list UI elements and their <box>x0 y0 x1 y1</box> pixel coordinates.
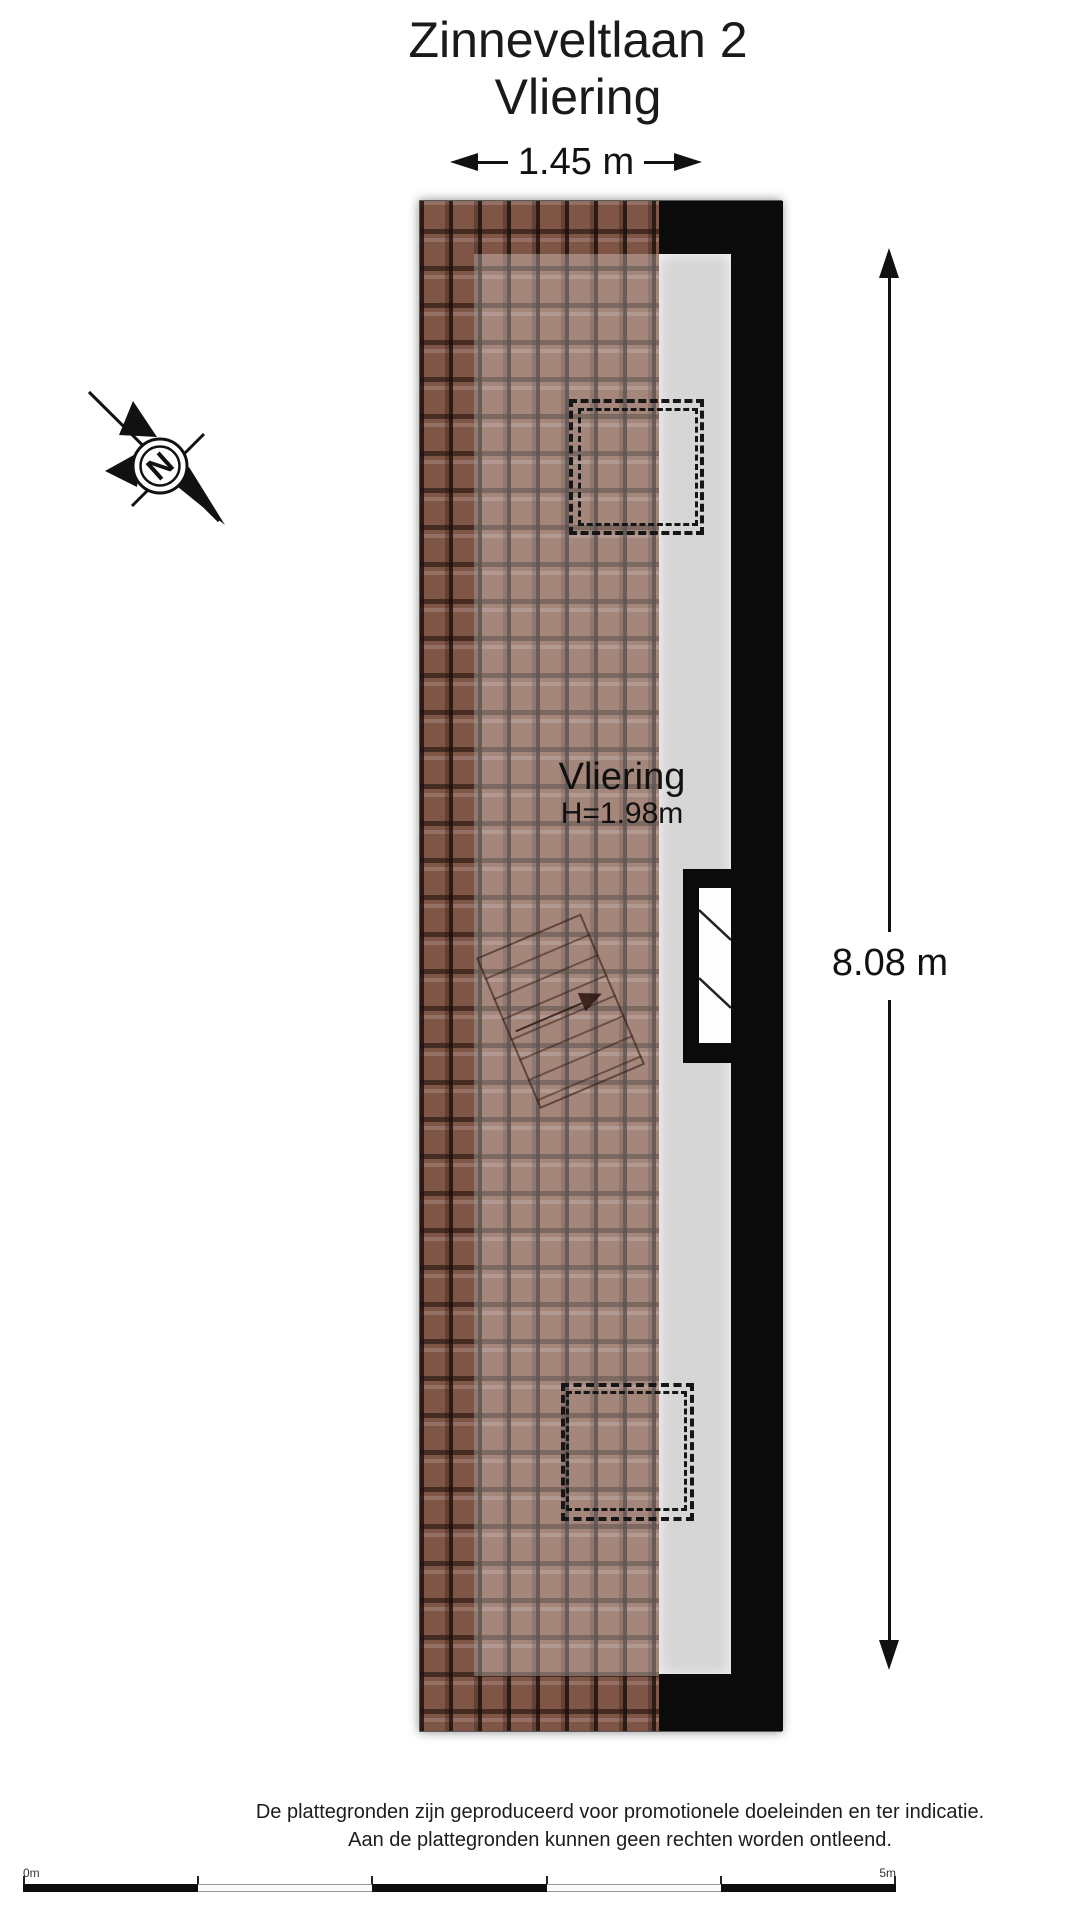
arrow-up-icon <box>879 248 899 278</box>
top-wall-block <box>659 201 783 254</box>
height-dimension-line-top <box>888 276 891 932</box>
window-pane <box>699 888 731 1043</box>
width-dimension-label: 1.45 m <box>508 141 644 184</box>
dormer-outline-bottom-inner <box>566 1391 687 1511</box>
side-window <box>683 869 783 1063</box>
disclaimer: De plattegronden zijn geproduceerd voor … <box>130 1798 1080 1854</box>
disclaimer-line-1: De plattegronden zijn geproduceerd voor … <box>130 1798 1080 1826</box>
stair-direction-arrow-icon <box>578 984 606 1011</box>
width-dimension: 1.45 m <box>450 144 702 180</box>
address-title: Zinneveltlaan 2 <box>408 12 747 69</box>
arrow-right-icon <box>674 153 702 171</box>
room-ceiling-height: H=1.98m <box>559 798 686 830</box>
bottom-wall-block <box>659 1674 783 1731</box>
window-glazing-lines <box>699 888 731 1043</box>
arrow-down-icon <box>879 1640 899 1670</box>
scale-bar: 0m 5m <box>23 1866 896 1898</box>
room-label: Vliering H=1.98m <box>559 756 686 830</box>
scale-start-label: 0m <box>23 1866 40 1880</box>
floor-title: Vliering <box>408 69 747 126</box>
height-dimension-line-bottom <box>888 1000 891 1640</box>
north-compass-icon: N <box>83 383 225 525</box>
dormer-outline-top-inner <box>578 408 698 526</box>
page-title: Zinneveltlaan 2 Vliering <box>408 12 747 126</box>
stair-direction-line <box>515 1002 582 1032</box>
floor-plan <box>419 200 782 1732</box>
disclaimer-line-2: Aan de plattegronden kunnen geen rechten… <box>130 1826 1080 1854</box>
room-name: Vliering <box>559 756 686 798</box>
scale-bar-segments <box>23 1884 896 1892</box>
arrow-left-icon <box>450 153 478 171</box>
height-dimension-label: 8.08 m <box>832 942 948 985</box>
